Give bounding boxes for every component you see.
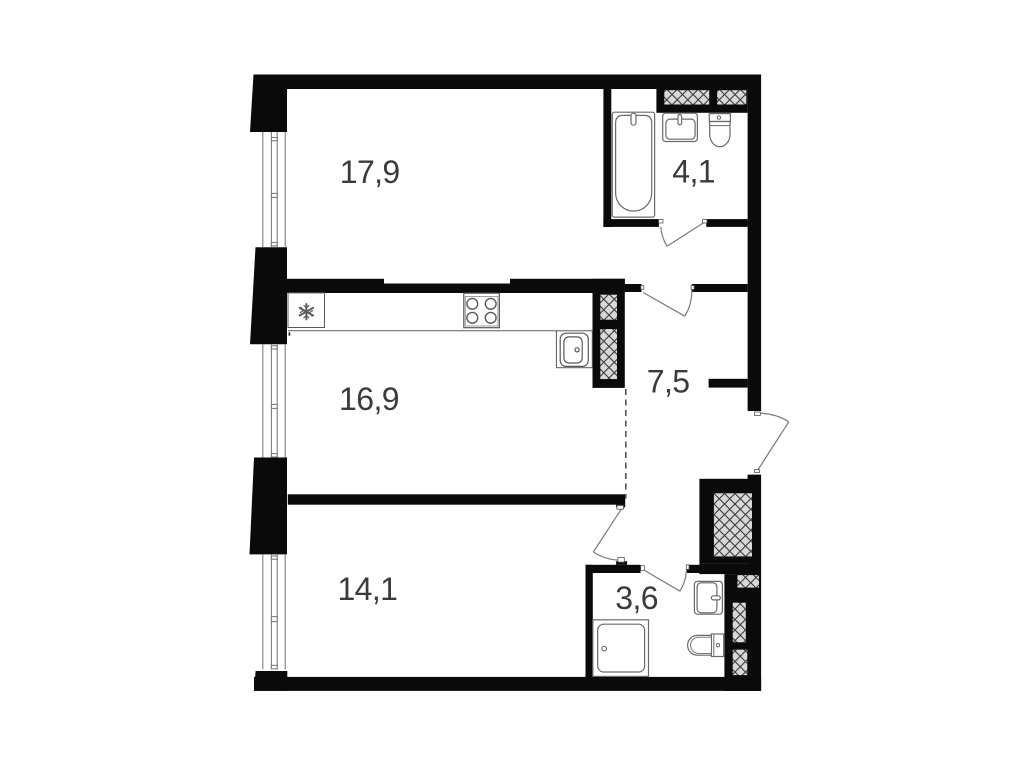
- svg-text:4,1: 4,1: [672, 153, 715, 189]
- svg-text:14,1: 14,1: [337, 571, 397, 607]
- svg-text:16,9: 16,9: [339, 381, 399, 417]
- svg-text:7,5: 7,5: [647, 364, 690, 400]
- svg-text:17,9: 17,9: [340, 154, 400, 190]
- svg-text:3,6: 3,6: [615, 580, 658, 616]
